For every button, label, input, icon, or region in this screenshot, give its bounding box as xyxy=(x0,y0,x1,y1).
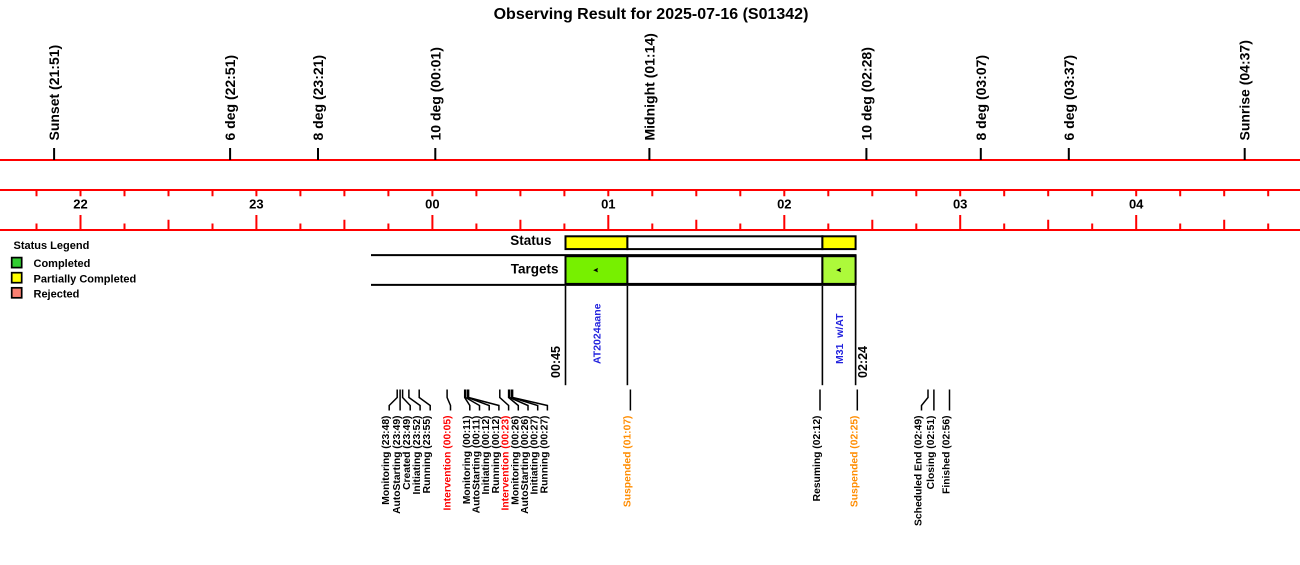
svg-text:Running (00:27): Running (00:27) xyxy=(539,416,550,494)
svg-text:AT2024aane: AT2024aane xyxy=(592,303,604,364)
svg-text:Partially Completed: Partially Completed xyxy=(34,273,137,285)
svg-text:01: 01 xyxy=(601,197,615,212)
svg-text:6 deg (22:51): 6 deg (22:51) xyxy=(222,55,238,141)
svg-text:Scheduled End (02:49): Scheduled End (02:49) xyxy=(914,416,925,526)
svg-text:Status: Status xyxy=(510,233,551,248)
svg-text:Status Legend: Status Legend xyxy=(14,240,90,252)
svg-text:23: 23 xyxy=(249,197,263,212)
svg-text:8 deg (03:07): 8 deg (03:07) xyxy=(973,55,989,141)
svg-text:04: 04 xyxy=(1129,197,1144,212)
svg-text:8 deg (23:21): 8 deg (23:21) xyxy=(310,55,326,141)
svg-text:Finished (02:56): Finished (02:56) xyxy=(942,416,953,494)
svg-text:Suspended (02:25): Suspended (02:25) xyxy=(849,416,860,508)
svg-text:Monitoring (23:48): Monitoring (23:48) xyxy=(381,416,392,505)
svg-text:22: 22 xyxy=(73,197,87,212)
svg-text:02: 02 xyxy=(777,197,791,212)
svg-text:Completed: Completed xyxy=(34,258,91,270)
svg-text:6 deg (03:37): 6 deg (03:37) xyxy=(1061,55,1077,141)
svg-text:M31 w/AT: M31 w/AT xyxy=(834,313,846,364)
svg-text:10 deg (02:28): 10 deg (02:28) xyxy=(858,47,874,140)
svg-text:Closing (02:51): Closing (02:51) xyxy=(926,416,937,490)
svg-text:Intervention (00:05): Intervention (00:05) xyxy=(443,416,454,511)
svg-text:Suspended (01:07): Suspended (01:07) xyxy=(622,416,633,508)
svg-text:Targets: Targets xyxy=(511,261,559,276)
svg-text:Sunrise (04:37): Sunrise (04:37) xyxy=(1237,40,1253,140)
svg-text:10 deg (00:01): 10 deg (00:01) xyxy=(427,47,443,140)
svg-text:Midnight (01:14): Midnight (01:14) xyxy=(641,33,657,140)
svg-text:Observing Result for 2025-07-1: Observing Result for 2025-07-16 (S01342) xyxy=(494,6,809,23)
svg-text:Resuming (02:12): Resuming (02:12) xyxy=(812,416,823,502)
svg-text:Sunset (21:51): Sunset (21:51) xyxy=(46,45,62,141)
svg-text:00:45: 00:45 xyxy=(549,346,563,378)
svg-text:Running (23:55): Running (23:55) xyxy=(422,416,433,494)
svg-text:00: 00 xyxy=(425,197,439,212)
svg-text:02:24: 02:24 xyxy=(856,346,870,378)
svg-text:Rejected: Rejected xyxy=(34,288,80,300)
svg-text:03: 03 xyxy=(953,197,967,212)
